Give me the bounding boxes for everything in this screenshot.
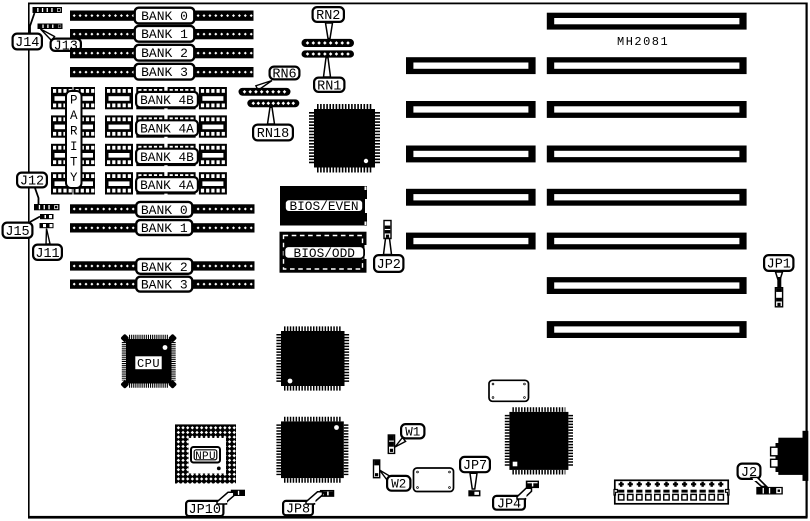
svg-text:BANK 4A: BANK 4A <box>140 178 194 193</box>
svg-text:BANK 0: BANK 0 <box>141 203 188 218</box>
svg-text:BANK 4A: BANK 4A <box>140 121 194 136</box>
svg-text:RN6: RN6 <box>272 68 296 83</box>
svg-text:BANK 1: BANK 1 <box>141 27 188 42</box>
svg-text:BIOS/EVEN: BIOS/EVEN <box>289 199 358 214</box>
svg-text:RN1: RN1 <box>317 79 341 94</box>
svg-text:JP7: JP7 <box>463 459 487 474</box>
svg-text:BANK 3: BANK 3 <box>141 278 188 293</box>
svg-text:BANK 1: BANK 1 <box>141 221 188 236</box>
svg-text:BANK 2: BANK 2 <box>141 46 188 61</box>
svg-text:J11: J11 <box>35 247 59 262</box>
svg-text:MH2081: MH2081 <box>617 35 669 49</box>
svg-text:BANK 0: BANK 0 <box>141 9 188 24</box>
svg-text:JP8: JP8 <box>286 503 310 518</box>
svg-text:T: T <box>70 156 78 170</box>
svg-text:J12: J12 <box>20 175 44 190</box>
svg-text:J15: J15 <box>5 225 29 240</box>
svg-text:BANK 4B: BANK 4B <box>140 150 194 165</box>
svg-text:BANK 3: BANK 3 <box>141 65 188 80</box>
svg-text:J14: J14 <box>15 36 39 51</box>
svg-text:JP10: JP10 <box>189 503 221 518</box>
svg-text:W1: W1 <box>405 426 420 440</box>
svg-text:W2: W2 <box>391 478 406 492</box>
svg-text:I: I <box>70 140 78 154</box>
svg-text:RN18: RN18 <box>257 127 289 142</box>
svg-text:JP1: JP1 <box>767 258 791 273</box>
svg-text:BIOS/ODD: BIOS/ODD <box>294 246 356 261</box>
svg-text:RN2: RN2 <box>316 9 340 24</box>
svg-text:JP2: JP2 <box>377 258 401 273</box>
svg-text:P: P <box>70 94 78 108</box>
svg-text:A: A <box>70 109 78 123</box>
svg-text:BANK 2: BANK 2 <box>141 260 188 275</box>
svg-text:CPU: CPU <box>137 357 160 371</box>
svg-text:NPU: NPU <box>195 451 216 463</box>
svg-text:Y: Y <box>70 171 78 185</box>
svg-text:BANK 4B: BANK 4B <box>140 93 194 108</box>
svg-text:R: R <box>70 125 78 139</box>
